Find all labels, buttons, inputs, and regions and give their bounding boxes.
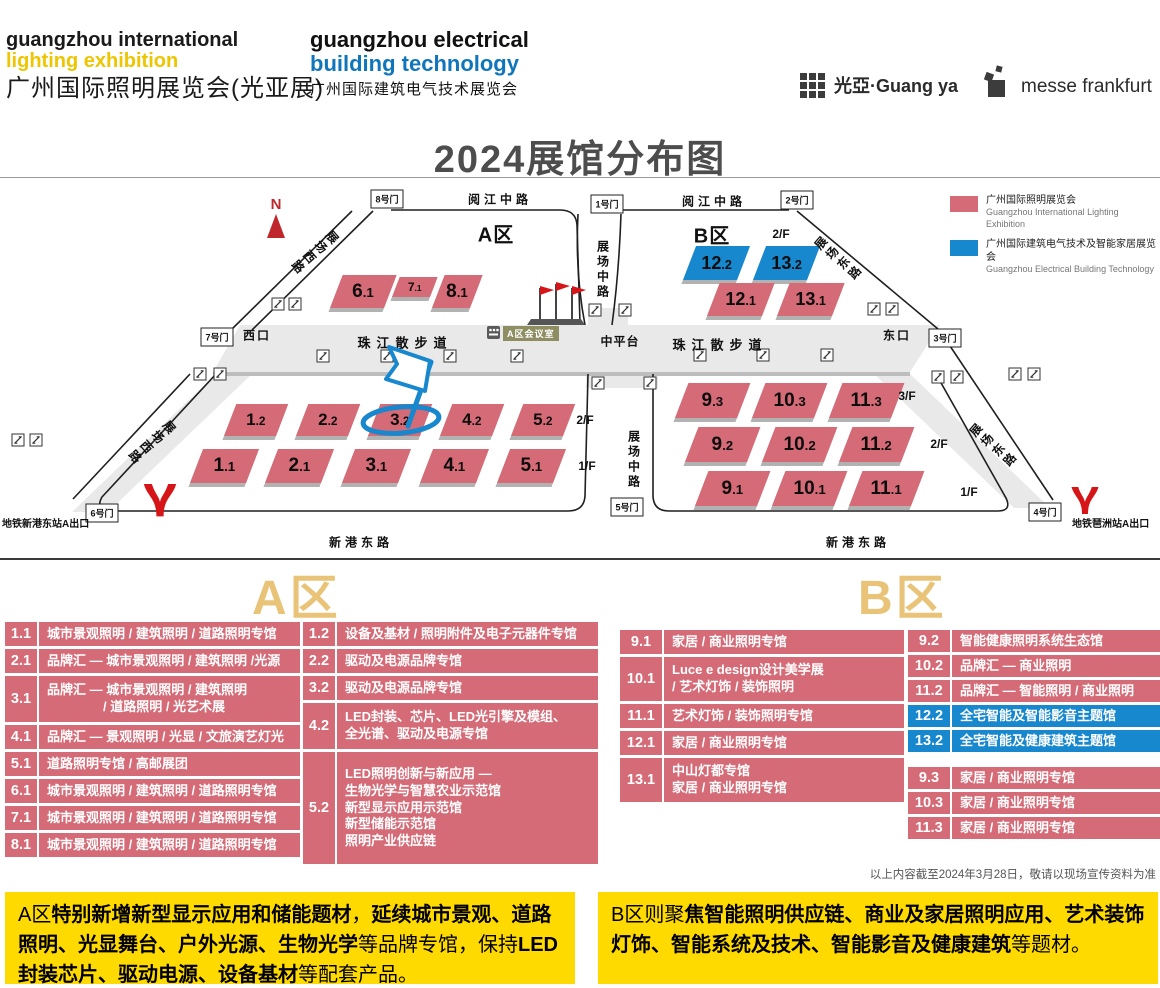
escalator-icon xyxy=(951,371,964,384)
escalator-icon xyxy=(868,303,881,316)
legend-red-cn: 广州国际照明展览会 xyxy=(986,194,1160,207)
hall-number-cell: 3.2 xyxy=(303,676,337,700)
hall-desc-cell: 城市景观照明 / 建筑照明 / 道路照明专馆 xyxy=(39,622,300,646)
building-technology-logo: guangzhou electrical building technology… xyxy=(310,28,529,98)
hall-number-cell: 9.3 xyxy=(908,767,952,789)
hall-desc-line: 城市景观照明 / 建筑照明 / 道路照明专馆 xyxy=(47,626,292,643)
hall-desc-cell: 中山灯都专馆家居 / 商业照明专馆 xyxy=(664,758,904,802)
escalator-icon xyxy=(12,434,25,447)
hall-number-cell: 10.1 xyxy=(620,657,664,701)
messe-frankfurt-icon xyxy=(985,66,1011,98)
table-row-9.1: 9.1家居 / 商业照明专馆 xyxy=(620,630,904,654)
gate-4号门: 4号门 xyxy=(1028,503,1061,522)
venue-map: 广州国际照明展览会 Guangzhou International Lighti… xyxy=(0,178,1160,560)
hall-desc-line: 中山灯都专馆 xyxy=(672,763,896,780)
hall-number: 1.2 xyxy=(246,410,265,430)
map-label-A区: A区 xyxy=(478,219,514,248)
section-title-a: A区 xyxy=(252,558,341,628)
logo1-line3: 广州国际照明展览会(光亚展) xyxy=(6,76,324,101)
logo2-line3: 广州国际建筑电气技术展览会 xyxy=(310,82,529,98)
footnote: 以上内容截至2024年3月28日，敬请以现场宣传资料为准 xyxy=(870,866,1156,882)
hall-desc-line: 全宅智能及健康建筑主题馆 xyxy=(960,733,1152,750)
hall-number: 3.1 xyxy=(366,455,388,477)
table-gap xyxy=(908,755,1160,767)
hall-number: 10.2 xyxy=(784,434,816,456)
table-row-13.2: 13.2全宅智能及健康建筑主题馆 xyxy=(908,730,1160,752)
hall-desc-line: 家居 / 商业照明专馆 xyxy=(960,820,1152,837)
escalator-icon xyxy=(886,303,899,316)
hall-number-cell: 13.1 xyxy=(620,758,664,802)
hall-number: 11.3 xyxy=(851,390,882,412)
meeting-room-badge: A区会议室 xyxy=(503,326,559,341)
map-label-珠江散步道: 珠江散步道 xyxy=(672,335,767,354)
hall-number: 3.2 xyxy=(390,410,409,430)
table-b-left: 9.1家居 / 商业照明专馆10.1Luce e design设计美学展/ 艺术… xyxy=(620,630,904,805)
map-label-展场中路: 展场中路 xyxy=(628,431,640,488)
hall-desc-cell: 智能健康照明系统生态馆 xyxy=(952,630,1160,652)
escalator-icon xyxy=(1009,368,1022,381)
table-row-7.1: 7.1城市景观照明 / 建筑照明 / 道路照明专馆 xyxy=(5,806,300,830)
hall-number-cell: 12.2 xyxy=(908,705,952,727)
gate-8号门: 8号门 xyxy=(370,190,403,209)
gate-6号门: 6号门 xyxy=(85,504,118,523)
map-label-西口: 西口 xyxy=(243,327,271,344)
hall-number-cell: 10.3 xyxy=(908,792,952,814)
table-row-10.1: 10.1Luce e design设计美学展/ 艺术灯饰 / 装饰照明 xyxy=(620,657,904,701)
table-row-12.2: 12.2全宅智能及智能影音主题馆 xyxy=(908,705,1160,727)
map-label-珠江散步道: 珠江散步道 xyxy=(357,333,452,352)
flags-icon xyxy=(527,282,586,325)
hall-desc-line: 家居 / 商业照明专馆 xyxy=(672,634,896,651)
hall-desc-line: LED照明创新与新应用 — xyxy=(345,766,590,783)
hall-desc-line: 城市景观照明 / 建筑照明 / 道路照明专馆 xyxy=(47,810,292,827)
hall-desc-cell: 品牌汇 — 商业照明 xyxy=(952,655,1160,677)
hall-desc-line: 品牌汇 — 商业照明 xyxy=(960,658,1152,675)
hall-desc-line: 全宅智能及智能影音主题馆 xyxy=(960,708,1152,725)
hall-desc-line: 驱动及电源品牌专馆 xyxy=(345,653,590,670)
gate-2号门: 2号门 xyxy=(780,191,813,210)
legend-blue-cn: 广州国际建筑电气技术及智能家居展览会 xyxy=(986,238,1160,264)
map-label-中平台: 中平台 xyxy=(600,333,639,350)
hall-desc-cell: 城市景观照明 / 建筑照明 / 道路照明专馆 xyxy=(39,833,300,857)
table-row-1.2: 1.2设备及基材 / 照明附件及电子元器件专馆 xyxy=(303,622,598,646)
table-b-right: 9.2智能健康照明系统生态馆10.2品牌汇 — 商业照明11.2品牌汇 — 智能… xyxy=(908,630,1160,842)
hall-desc-line: 家居 / 商业照明专馆 xyxy=(672,780,896,797)
hall-number: 12.2 xyxy=(701,253,732,274)
hall-number-cell: 13.2 xyxy=(908,730,952,752)
hall-number-cell: 8.1 xyxy=(5,833,39,857)
hall-number-cell: 9.1 xyxy=(620,630,664,654)
hall-desc-line: 品牌汇 — 城市景观照明 / 建筑照明 xyxy=(47,682,292,699)
hall-desc-line: 家居 / 商业照明专馆 xyxy=(672,735,896,752)
table-row-3.2: 3.2驱动及电源品牌专馆 xyxy=(303,676,598,700)
logo1-line1: guangzhou international xyxy=(6,30,324,51)
legend-swatch-blue xyxy=(950,240,978,256)
gate-7号门: 7号门 xyxy=(200,328,233,347)
hall-number-cell: 7.1 xyxy=(5,806,39,830)
guangya-logo: 光亞·Guang ya xyxy=(800,72,958,98)
table-row-11.2: 11.2品牌汇 — 智能照明 / 商业照明 xyxy=(908,680,1160,702)
escalator-icon xyxy=(511,350,524,363)
hall-desc-cell: 品牌汇 — 智能照明 / 商业照明 xyxy=(952,680,1160,702)
hall-number: 9.1 xyxy=(722,478,744,500)
gate-1号门: 1号门 xyxy=(590,195,623,214)
escalator-icon xyxy=(317,350,330,363)
note-segment: 等配套产品。 xyxy=(298,964,418,986)
logo2-line2: building technology xyxy=(310,52,529,76)
note-segment: ， xyxy=(351,904,371,926)
hall-number-cell: 9.2 xyxy=(908,630,952,652)
hall-desc-cell: LED封装、芯片、LED光引擎及模组、全光谱、驱动及电源专馆 xyxy=(337,703,598,749)
hall-number: 11.2 xyxy=(861,434,892,456)
map-label-阅江中路: 阅江中路 xyxy=(468,191,532,208)
table-row-2.2: 2.2驱动及电源品牌专馆 xyxy=(303,649,598,673)
escalator-icon xyxy=(589,304,602,317)
hall-number-cell: 4.2 xyxy=(303,703,337,749)
hall-number-cell: 11.2 xyxy=(908,680,952,702)
map-label-2/F: 2/F xyxy=(576,413,593,427)
hall-desc-cell: 道路照明专馆 / 高邮展团 xyxy=(39,752,300,776)
hall-number: 6.1 xyxy=(352,281,374,303)
table-row-13.1: 13.1中山灯都专馆家居 / 商业照明专馆 xyxy=(620,758,904,802)
hall-number: 9.3 xyxy=(702,390,724,412)
page-title: 2024展馆分布图 xyxy=(0,128,1160,183)
hall-desc-cell: 家居 / 商业照明专馆 xyxy=(664,731,904,755)
table-row-1.1: 1.1城市景观照明 / 建筑照明 / 道路照明专馆 xyxy=(5,622,300,646)
north-arrow-icon xyxy=(267,214,285,238)
hall-desc-cell: 家居 / 商业照明专馆 xyxy=(664,630,904,654)
hall-number-cell: 1.2 xyxy=(303,622,337,646)
hall-number: 1.1 xyxy=(214,455,236,477)
table-row-10.2: 10.2品牌汇 — 商业照明 xyxy=(908,655,1160,677)
escalator-icon xyxy=(194,368,207,381)
map-label-1/F: 1/F xyxy=(960,485,977,499)
hall-desc-cell: 家居 / 商业照明专馆 xyxy=(952,767,1160,789)
hall-desc-line: 全光谱、驱动及电源专馆 xyxy=(345,726,590,743)
hall-number: 11.1 xyxy=(871,478,902,500)
hall-number-cell: 11.1 xyxy=(620,704,664,728)
hall-number: 2.2 xyxy=(318,410,337,430)
metro-exit-label: 地铁琶洲站A出口 xyxy=(1072,515,1149,530)
section-title-b: B区 xyxy=(858,558,947,628)
lighting-exhibition-logo: guangzhou international lighting exhibit… xyxy=(6,30,324,102)
table-row-5.2: 5.2LED照明创新与新应用 —生物光学与智慧农业示范馆新型显示应用示范馆新型储… xyxy=(303,752,598,864)
hall-desc-line: 新型显示应用示范馆 xyxy=(345,800,590,817)
hall-number: 10.1 xyxy=(794,478,826,500)
hall-number: 8.1 xyxy=(446,281,468,303)
hall-desc-cell: 驱动及电源品牌专馆 xyxy=(337,649,598,673)
hall-number-cell: 2.1 xyxy=(5,649,39,673)
note-segment: B区则聚 xyxy=(611,904,684,926)
table-row-9.2: 9.2智能健康照明系统生态馆 xyxy=(908,630,1160,652)
map-legend: 广州国际照明展览会 Guangzhou International Lighti… xyxy=(950,194,1160,284)
note-segment: 等题材。 xyxy=(1011,934,1091,956)
hall-number: 10.3 xyxy=(774,390,806,412)
hall-number-cell: 12.1 xyxy=(620,731,664,755)
legend-swatch-red xyxy=(950,196,978,212)
hall-desc-line: 设备及基材 / 照明附件及电子元器件专馆 xyxy=(345,626,590,643)
map-label-东口: 东口 xyxy=(883,327,911,344)
hall-number: 4.1 xyxy=(444,455,466,477)
hall-desc-line: 家居 / 商业照明专馆 xyxy=(960,770,1152,787)
escalator-icon xyxy=(289,298,302,311)
legend-item-lighting: 广州国际照明展览会 Guangzhou International Lighti… xyxy=(950,194,1160,230)
hall-desc-line: / 道路照明 / 光艺术展 xyxy=(47,699,292,716)
hall-desc-cell: 全宅智能及健康建筑主题馆 xyxy=(952,730,1160,752)
hall-7.1: 7.1 xyxy=(392,277,438,297)
table-row-2.1: 2.1品牌汇 — 城市景观照明 / 建筑照明 /光源 xyxy=(5,649,300,673)
hall-number: 13.1 xyxy=(796,289,827,310)
hall-desc-cell: 驱动及电源品牌专馆 xyxy=(337,676,598,700)
table-row-8.1: 8.1城市景观照明 / 建筑照明 / 道路照明专馆 xyxy=(5,833,300,857)
map-label-2/F: 2/F xyxy=(930,437,947,451)
hall-desc-cell: 品牌汇 — 城市景观照明 / 建筑照明 /光源 xyxy=(39,649,300,673)
metro-exit-label: 地铁新港东站A出口 xyxy=(2,515,89,530)
hall-desc-line: 品牌汇 — 城市景观照明 / 建筑照明 /光源 xyxy=(47,653,292,670)
hall-desc-cell: 城市景观照明 / 建筑照明 / 道路照明专馆 xyxy=(39,779,300,803)
guangya-logo-text: 光亞·Guang ya xyxy=(834,72,958,98)
hall-desc-line: 艺术灯饰 / 装饰照明专馆 xyxy=(672,708,896,725)
escalator-icon xyxy=(619,304,632,317)
map-label-3/F: 3/F xyxy=(898,389,915,403)
note-segment: 等品牌专馆，保持 xyxy=(358,934,518,956)
hall-desc-line: LED封装、芯片、LED光引擎及模组、 xyxy=(345,709,590,726)
hall-number-cell: 5.1 xyxy=(5,752,39,776)
table-row-3.1: 3.1品牌汇 — 城市景观照明 / 建筑照明/ 道路照明 / 光艺术展 xyxy=(5,676,300,722)
escalator-icon xyxy=(272,298,285,311)
table-row-10.3: 10.3家居 / 商业照明专馆 xyxy=(908,792,1160,814)
map-label-展场中路: 展场中路 xyxy=(597,241,609,298)
hall-desc-line: Luce e design设计美学展 xyxy=(672,662,896,679)
hall-number-cell: 1.1 xyxy=(5,622,39,646)
escalator-icon xyxy=(821,349,834,362)
gate-5号门: 5号门 xyxy=(610,498,643,517)
hall-number-cell: 4.1 xyxy=(5,725,39,749)
compass-north-letter: N xyxy=(262,196,290,213)
escalator-icon xyxy=(214,368,227,381)
hall-number-cell: 11.3 xyxy=(908,817,952,839)
table-row-11.3: 11.3家居 / 商业照明专馆 xyxy=(908,817,1160,839)
hall-desc-cell: Luce e design设计美学展/ 艺术灯饰 / 装饰照明 xyxy=(664,657,904,701)
table-row-4.1: 4.1品牌汇 — 景观照明 / 光显 / 文旅演艺灯光 xyxy=(5,725,300,749)
hall-desc-line: 城市景观照明 / 建筑照明 / 道路照明专馆 xyxy=(47,837,292,854)
hall-desc-cell: 家居 / 商业照明专馆 xyxy=(952,817,1160,839)
map-label-2/F: 2/F xyxy=(772,227,789,241)
legend-blue-en: Guangzhou Electrical Building Technology xyxy=(986,264,1160,276)
table-row-6.1: 6.1城市景观照明 / 建筑照明 / 道路照明专馆 xyxy=(5,779,300,803)
table-a-left: 1.1城市景观照明 / 建筑照明 / 道路照明专馆2.1品牌汇 — 城市景观照明… xyxy=(5,622,300,860)
hall-number: 2.1 xyxy=(289,455,311,477)
hall-desc-line: 家居 / 商业照明专馆 xyxy=(960,795,1152,812)
note-b-zone: B区则聚焦智能照明供应链、商业及家居照明应用、艺术装饰灯饰、智能系统及技术、智能… xyxy=(598,892,1158,984)
hall-desc-line: 新型储能示范馆 xyxy=(345,816,590,833)
note-segment: A区 xyxy=(18,904,51,926)
map-label-新港东路: 新港东路 xyxy=(826,534,890,551)
hall-desc-line: 驱动及电源品牌专馆 xyxy=(345,680,590,697)
map-label-新港东路: 新港东路 xyxy=(329,534,393,551)
hall-number-cell: 10.2 xyxy=(908,655,952,677)
hall-desc-cell: 品牌汇 — 景观照明 / 光显 / 文旅演艺灯光 xyxy=(39,725,300,749)
hall-desc-cell: 城市景观照明 / 建筑照明 / 道路照明专馆 xyxy=(39,806,300,830)
compass-north: N xyxy=(262,196,290,214)
hall-desc-cell: 品牌汇 — 城市景观照明 / 建筑照明/ 道路照明 / 光艺术展 xyxy=(39,676,300,722)
table-row-4.2: 4.2LED封装、芯片、LED光引擎及模组、全光谱、驱动及电源专馆 xyxy=(303,703,598,749)
hall-desc-line: 照明产业供应链 xyxy=(345,833,590,850)
messe-frankfurt-logo: messe frankfurt xyxy=(985,66,1152,98)
escalator-icon xyxy=(30,434,43,447)
hall-number: 7.1 xyxy=(408,280,422,294)
map-label-阅江中路: 阅江中路 xyxy=(682,193,746,210)
hall-number-cell: 2.2 xyxy=(303,649,337,673)
escalator-icon xyxy=(644,377,657,390)
hall-desc-cell: LED照明创新与新应用 —生物光学与智慧农业示范馆新型显示应用示范馆新型储能示范… xyxy=(337,752,598,864)
hall-number-cell: 5.2 xyxy=(303,752,337,864)
hall-desc-line: 智能健康照明系统生态馆 xyxy=(960,633,1152,650)
escalator-icon xyxy=(592,377,605,390)
table-row-5.1: 5.1道路照明专馆 / 高邮展团 xyxy=(5,752,300,776)
hall-desc-cell: 艺术灯饰 / 装饰照明专馆 xyxy=(664,704,904,728)
note-a-zone: A区特别新增新型显示应用和储能题材，延续城市景观、道路照明、光显舞台、户外光源、… xyxy=(5,892,575,984)
table-row-9.3: 9.3家居 / 商业照明专馆 xyxy=(908,767,1160,789)
map-label-B区: B区 xyxy=(694,220,730,249)
hall-desc-cell: 设备及基材 / 照明附件及电子元器件专馆 xyxy=(337,622,598,646)
hall-desc-cell: 全宅智能及智能影音主题馆 xyxy=(952,705,1160,727)
guangya-grid-icon xyxy=(800,73,825,98)
exhibition-floorplan-poster: guangzhou international lighting exhibit… xyxy=(0,0,1160,988)
hall-desc-line: 城市景观照明 / 建筑照明 / 道路照明专馆 xyxy=(47,783,292,800)
table-a-right: 1.2设备及基材 / 照明附件及电子元器件专馆2.2驱动及电源品牌专馆3.2驱动… xyxy=(303,622,598,867)
table-row-12.1: 12.1家居 / 商业照明专馆 xyxy=(620,731,904,755)
metro-icon-right xyxy=(1072,487,1099,514)
hall-number: 4.2 xyxy=(462,410,481,430)
escalator-icon xyxy=(932,371,945,384)
hall-number-cell: 6.1 xyxy=(5,779,39,803)
hall-number: 9.2 xyxy=(712,434,734,456)
hall-number-cell: 3.1 xyxy=(5,676,39,722)
table-row-11.1: 11.1艺术灯饰 / 装饰照明专馆 xyxy=(620,704,904,728)
gate-3号门: 3号门 xyxy=(928,329,961,348)
logo2-line1: guangzhou electrical xyxy=(310,28,529,52)
note-bold-segment: 特别新增新型显示应用和储能题材 xyxy=(51,904,351,926)
legend-red-en: Guangzhou International Lighting Exhibit… xyxy=(986,207,1160,230)
hall-number: 5.1 xyxy=(521,455,543,477)
logo1-line2: lighting exhibition xyxy=(6,51,324,72)
hall-number: 5.2 xyxy=(533,410,552,430)
hall-desc-line: 品牌汇 — 智能照明 / 商业照明 xyxy=(960,683,1152,700)
meeting-room-icon xyxy=(487,326,500,339)
map-label-1/F: 1/F xyxy=(578,459,595,473)
messe-frankfurt-text: messe frankfurt xyxy=(1021,76,1152,98)
escalator-icon xyxy=(1028,368,1041,381)
hall-number: 12.1 xyxy=(726,289,757,310)
hall-desc-line: 品牌汇 — 景观照明 / 光显 / 文旅演艺灯光 xyxy=(47,729,292,746)
hall-desc-line: 道路照明专馆 / 高邮展团 xyxy=(47,756,292,773)
legend-item-electrical: 广州国际建筑电气技术及智能家居展览会 Guangzhou Electrical … xyxy=(950,238,1160,276)
hall-desc-line: 生物光学与智慧农业示范馆 xyxy=(345,783,590,800)
hall-desc-line: / 艺术灯饰 / 装饰照明 xyxy=(672,679,896,696)
hall-number: 13.2 xyxy=(771,253,802,274)
hall-desc-cell: 家居 / 商业照明专馆 xyxy=(952,792,1160,814)
